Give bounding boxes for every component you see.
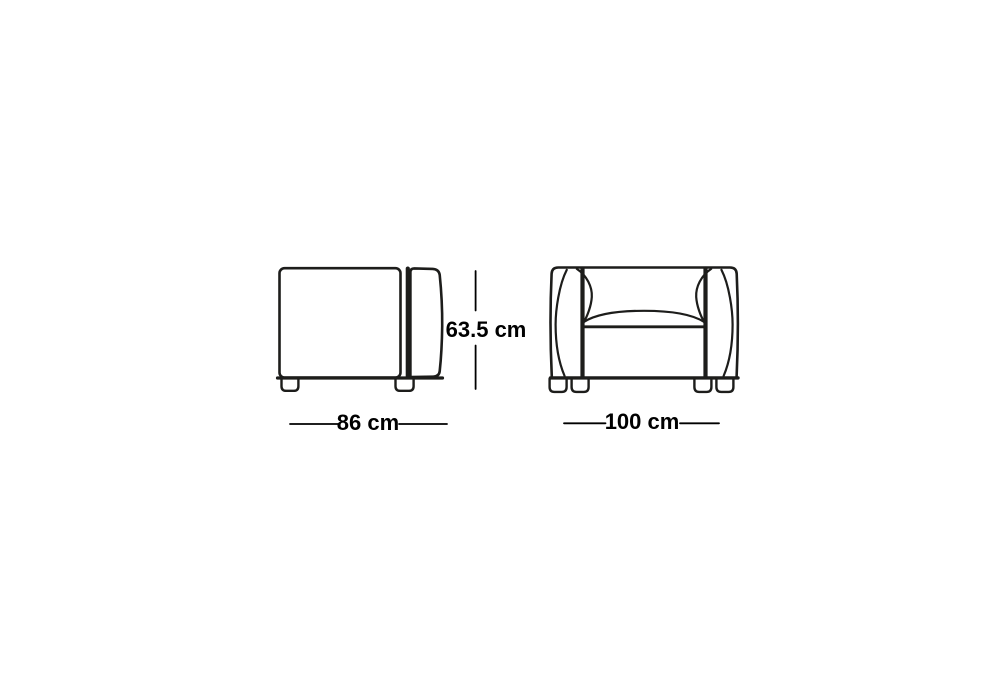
front-foot-4 [716,379,733,392]
front-foot-3 [694,379,711,392]
front-body-outline [550,268,737,378]
side-width-dimension-label: 86 cm [337,410,399,436]
dimension-drawing-canvas: 63.5 cm 86 cm 100 cm [0,0,1000,700]
side-foot-left [282,379,299,391]
side-backrest-panel-outline [410,268,442,377]
front-view-drawing [550,268,738,392]
height-dimension-label: 63.5 cm [446,317,527,343]
furniture-line-art [0,0,1000,700]
side-view-drawing [278,268,443,391]
front-width-dimension-label: 100 cm [605,409,680,435]
side-foot-right [396,379,414,391]
front-foot-2 [572,379,589,392]
side-body-outline [280,268,401,377]
front-foot-1 [550,379,567,392]
